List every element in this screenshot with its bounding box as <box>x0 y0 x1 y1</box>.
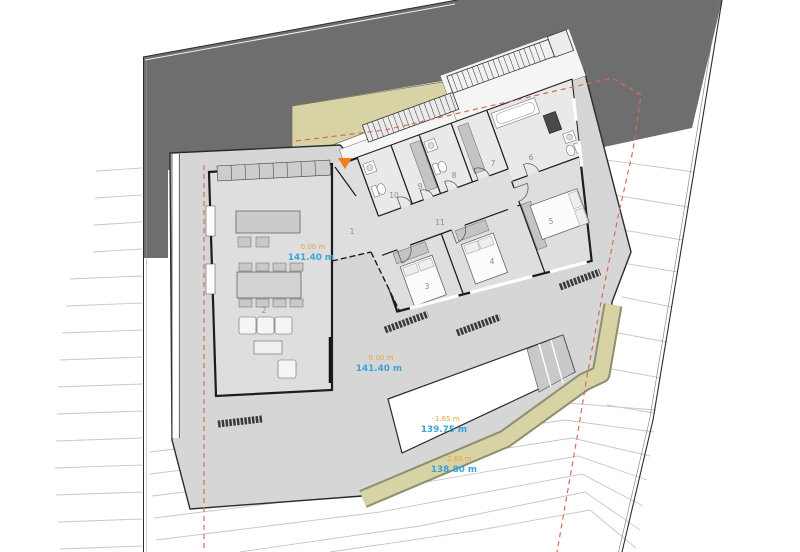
armchair <box>278 360 296 378</box>
elevation-pool-relative: -1.65 m <box>432 415 459 423</box>
site-plan-drawing: 1 2 3 4 5 6 7 8 9 10 11 0.00 m 141.40 m … <box>0 0 800 552</box>
room-label-2: 2 <box>262 306 267 315</box>
room-label-1: 1 <box>350 227 355 236</box>
elevation-living-relative: 0.00 m <box>301 243 326 251</box>
room-label-4: 4 <box>490 257 495 266</box>
window-west <box>206 206 215 236</box>
site-plan-canvas: 1 2 3 4 5 6 7 8 9 10 11 0.00 m 141.40 m … <box>0 0 800 552</box>
elevation-garden-relative: -2.60 m <box>444 455 471 463</box>
room-label-8: 8 <box>452 171 457 180</box>
elevation-terrace-relative: 0.00 m <box>369 354 394 362</box>
room-label-9: 9 <box>418 182 423 191</box>
elevation-pool-absolute: 139.75 m <box>421 425 467 435</box>
room-label-10: 10 <box>389 191 399 200</box>
room-label-5: 5 <box>549 217 554 226</box>
window-west <box>206 264 215 294</box>
coffee-table <box>254 341 282 354</box>
elevation-living-absolute: 141.40 m <box>288 253 334 263</box>
elevation-terrace-absolute: 141.40 m <box>356 364 402 374</box>
kitchen-island <box>236 211 300 233</box>
room-label-3: 3 <box>425 282 430 291</box>
room-label-11: 11 <box>435 218 445 227</box>
kitchen-living-wing <box>206 160 332 396</box>
stool <box>256 237 269 247</box>
stool <box>238 237 251 247</box>
room-label-6: 6 <box>529 153 534 162</box>
elevation-garden-absolute: 138.80 m <box>431 465 477 475</box>
room-label-7: 7 <box>491 159 496 168</box>
